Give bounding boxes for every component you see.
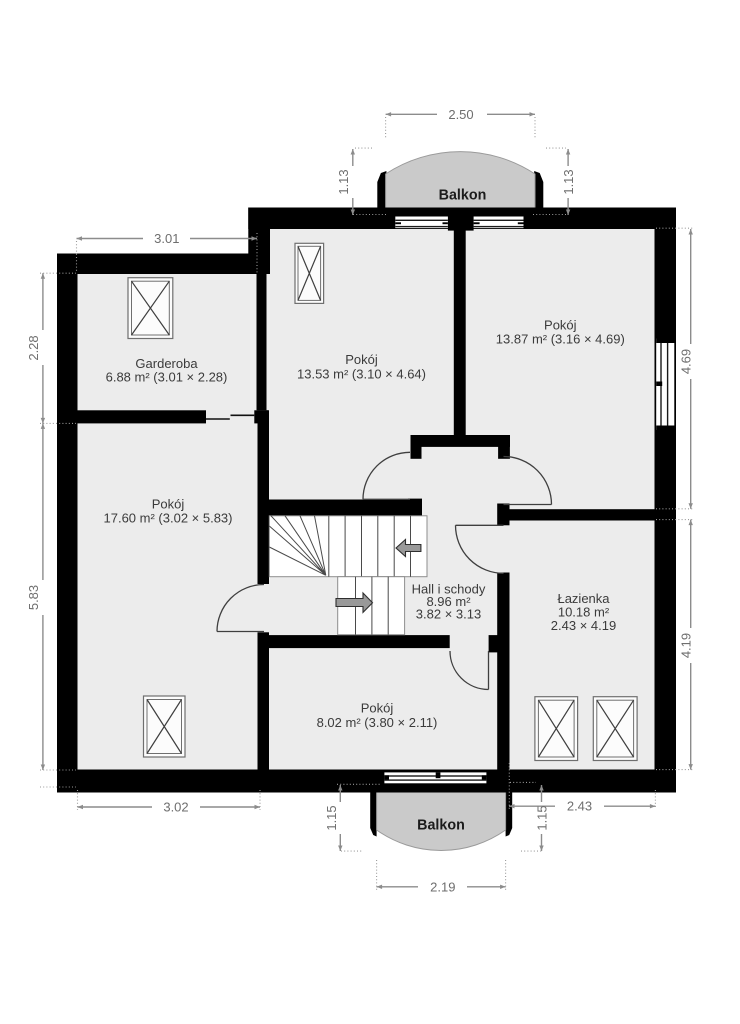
svg-text:4.69: 4.69 bbox=[679, 349, 694, 374]
svg-text:2.43: 2.43 bbox=[567, 799, 592, 814]
svg-text:2.43 × 4.19: 2.43 × 4.19 bbox=[551, 618, 616, 633]
svg-text:1.13: 1.13 bbox=[561, 169, 576, 194]
svg-text:Pokój: Pokój bbox=[345, 352, 378, 367]
svg-text:13.53 m² (3.10 × 4.64): 13.53 m² (3.10 × 4.64) bbox=[297, 366, 426, 381]
svg-text:Balkon: Balkon bbox=[439, 188, 487, 204]
svg-text:3.02: 3.02 bbox=[163, 800, 188, 815]
svg-text:Pokój: Pokój bbox=[361, 701, 394, 716]
svg-text:2.50: 2.50 bbox=[448, 107, 473, 122]
svg-text:1.15: 1.15 bbox=[324, 805, 339, 830]
svg-text:1.15: 1.15 bbox=[535, 805, 550, 830]
svg-text:1.13: 1.13 bbox=[336, 169, 351, 194]
svg-text:Balkon: Balkon bbox=[417, 818, 465, 834]
svg-text:Pokój: Pokój bbox=[544, 317, 577, 332]
svg-text:4.19: 4.19 bbox=[679, 633, 694, 658]
svg-text:3.01: 3.01 bbox=[154, 231, 179, 246]
svg-text:6.88 m² (3.01 × 2.28): 6.88 m² (3.01 × 2.28) bbox=[106, 370, 228, 385]
svg-text:Pokój: Pokój bbox=[152, 497, 185, 512]
svg-text:8.02 m² (3.80 × 2.11): 8.02 m² (3.80 × 2.11) bbox=[317, 715, 438, 730]
svg-text:2.28: 2.28 bbox=[26, 335, 41, 360]
svg-text:13.87 m² (3.16 × 4.69): 13.87 m² (3.16 × 4.69) bbox=[496, 331, 625, 346]
svg-text:2.19: 2.19 bbox=[430, 879, 455, 894]
svg-text:17.60 m² (3.02 × 5.83): 17.60 m² (3.02 × 5.83) bbox=[104, 511, 233, 526]
svg-text:5.83: 5.83 bbox=[26, 585, 41, 610]
svg-text:3.82 × 3.13: 3.82 × 3.13 bbox=[416, 607, 481, 622]
